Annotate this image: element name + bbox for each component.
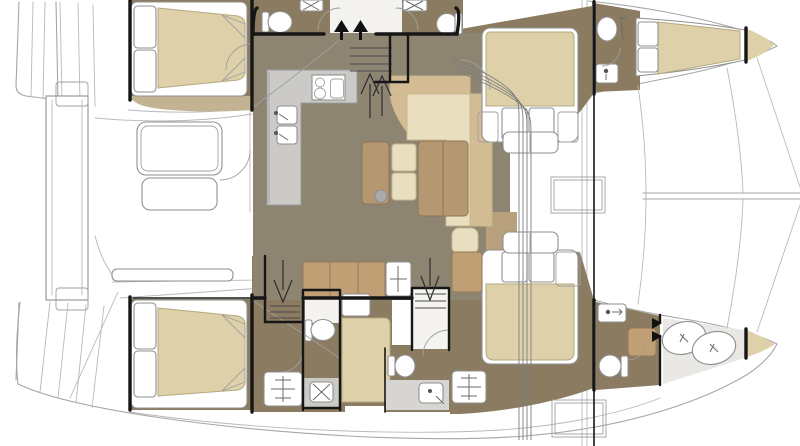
- ottoman: [392, 144, 416, 171]
- catamaran-floor-plan: [0, 0, 800, 446]
- head-sink: [596, 64, 618, 83]
- single-berth-mattress: [342, 318, 390, 402]
- faucet-icon: [604, 69, 608, 73]
- faucet-icon: [274, 111, 278, 115]
- toilet: [599, 355, 621, 377]
- pillow: [638, 22, 658, 46]
- double-bed-mattress: [486, 284, 574, 360]
- forward-bench: [503, 232, 558, 253]
- shower-mat: [628, 328, 656, 356]
- table-leg: [375, 190, 387, 202]
- toilet: [395, 355, 415, 377]
- pillow: [529, 252, 554, 282]
- cockpit-bench: [142, 178, 217, 210]
- head-sink: [598, 304, 626, 322]
- toilet: [437, 14, 458, 35]
- faucet-icon: [606, 310, 610, 314]
- sideboard: [303, 262, 385, 297]
- pillow: [134, 6, 156, 48]
- toilet-tank: [388, 356, 395, 376]
- double-bed-mattress: [158, 8, 245, 88]
- toilet: [597, 17, 617, 41]
- cockpit-table: [137, 122, 222, 175]
- toilet: [311, 320, 335, 341]
- wardrobe: [452, 252, 482, 292]
- pillow: [134, 351, 156, 397]
- pouf: [452, 228, 478, 254]
- toilet: [268, 12, 292, 33]
- forward-bench: [503, 132, 558, 153]
- pillow: [134, 303, 156, 349]
- faucet-icon: [428, 389, 432, 393]
- double-bed-mattress: [486, 32, 574, 106]
- ottoman: [392, 173, 416, 200]
- faucet-icon: [274, 131, 278, 135]
- pillow: [638, 48, 658, 72]
- floor-plan-canvas: [0, 0, 800, 446]
- double-bed-mattress: [158, 308, 245, 396]
- cockpit-coaming-rail: [112, 269, 233, 281]
- sofa-back: [390, 76, 470, 94]
- pillow: [134, 50, 156, 92]
- toilet-tank: [621, 356, 628, 377]
